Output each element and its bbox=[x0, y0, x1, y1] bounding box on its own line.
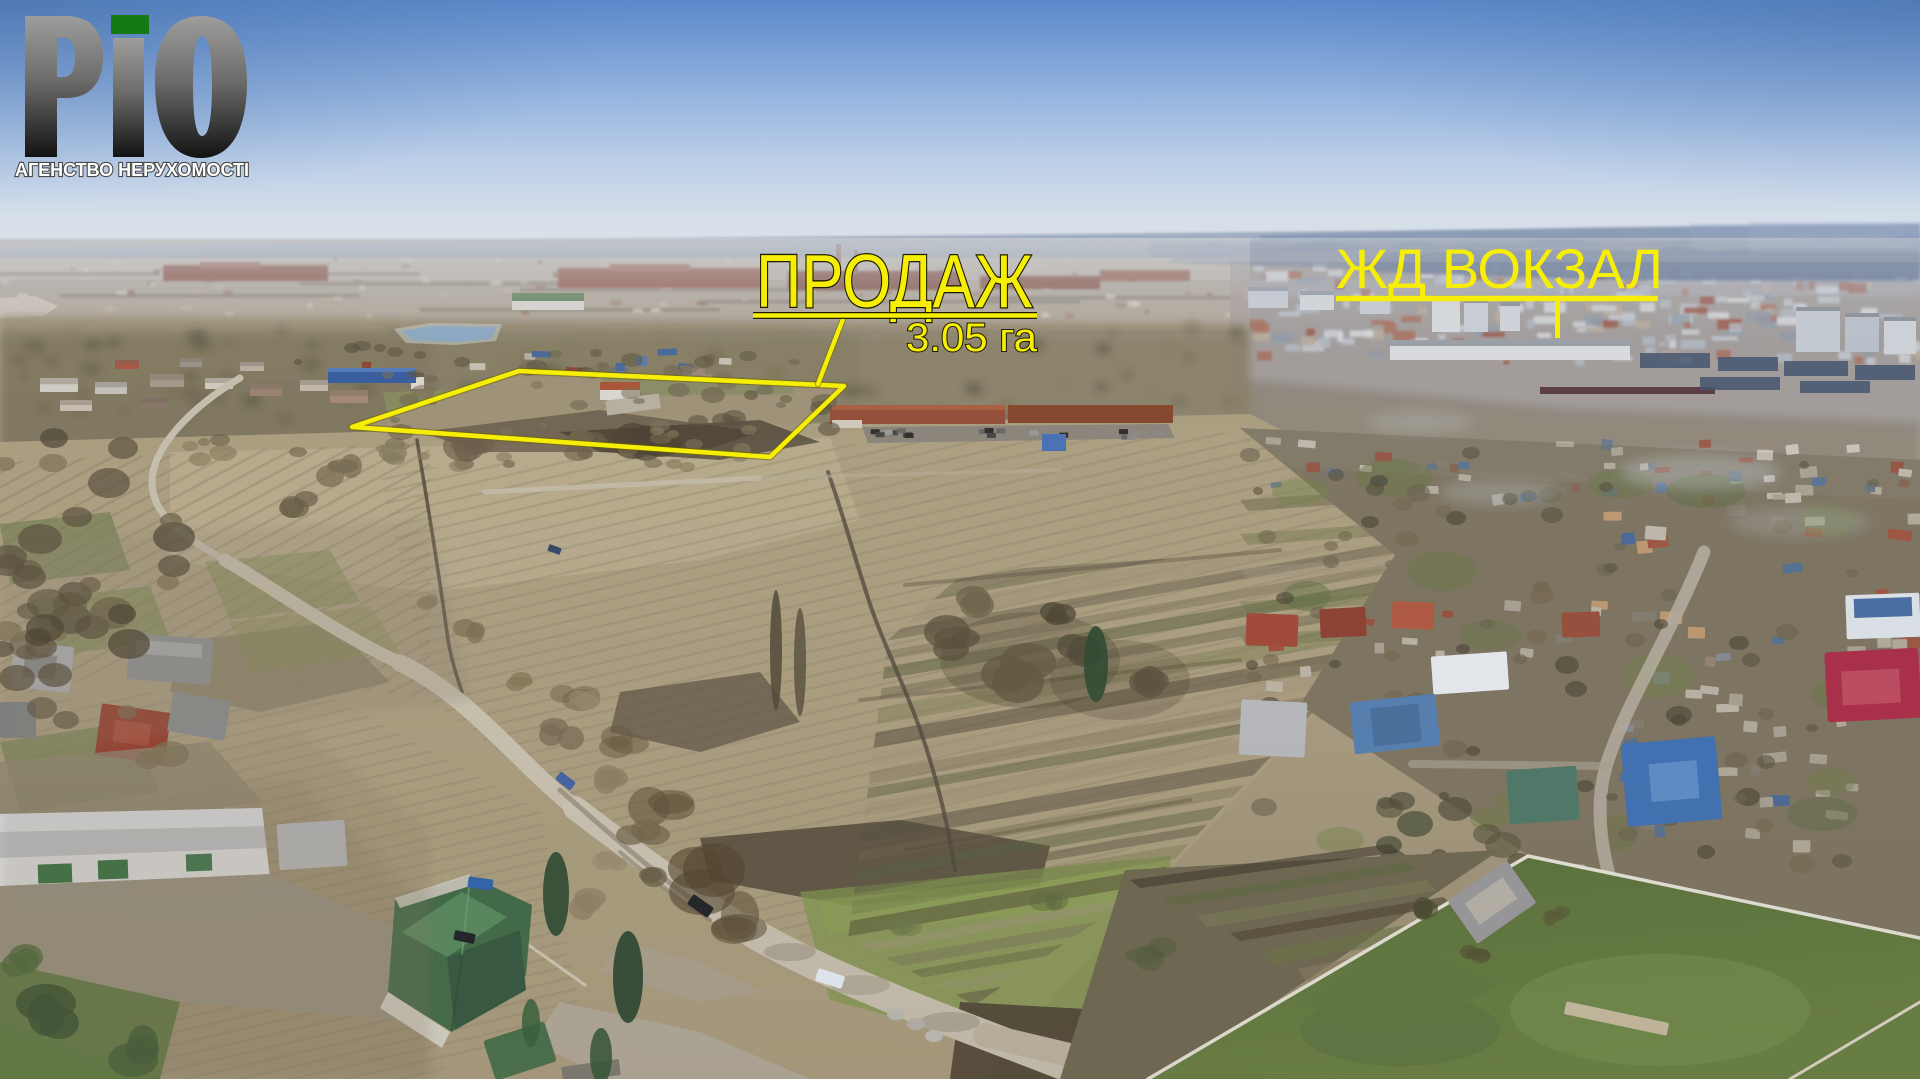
svg-text:3.05 га: 3.05 га bbox=[906, 316, 1038, 360]
svg-text:АГЕНСТВО НЕРУХОМОСТІ: АГЕНСТВО НЕРУХОМОСТІ bbox=[15, 160, 249, 180]
svg-text:ЖД ВОКЗАЛ: ЖД ВОКЗАЛ bbox=[1336, 237, 1663, 300]
svg-text:ПРОДАЖ: ПРОДАЖ bbox=[756, 239, 1033, 323]
